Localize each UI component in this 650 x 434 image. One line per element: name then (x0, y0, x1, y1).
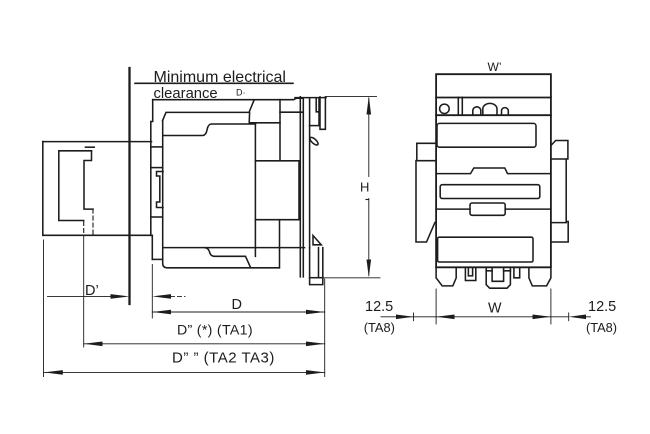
svg-text:H: H (360, 180, 369, 195)
svg-text:clearance: clearance (154, 86, 218, 102)
svg-text:Minimum electrical: Minimum electrical (154, 69, 286, 86)
svg-text:(TA8): (TA8) (586, 320, 617, 335)
svg-text:D: D (232, 297, 242, 313)
svg-text:W: W (488, 301, 502, 317)
svg-text:D’: D’ (85, 283, 99, 299)
svg-text:12.5: 12.5 (365, 299, 393, 315)
svg-text:D” ” (TA2 TA3): D” ” (TA2 TA3) (172, 350, 275, 367)
svg-text:(TA8): (TA8) (364, 320, 395, 335)
svg-text:D·: D· (236, 88, 246, 98)
svg-text:D” (*) (TA1): D” (*) (TA1) (177, 323, 253, 339)
svg-text:12.5: 12.5 (588, 299, 616, 315)
svg-text:W’: W’ (488, 60, 502, 74)
